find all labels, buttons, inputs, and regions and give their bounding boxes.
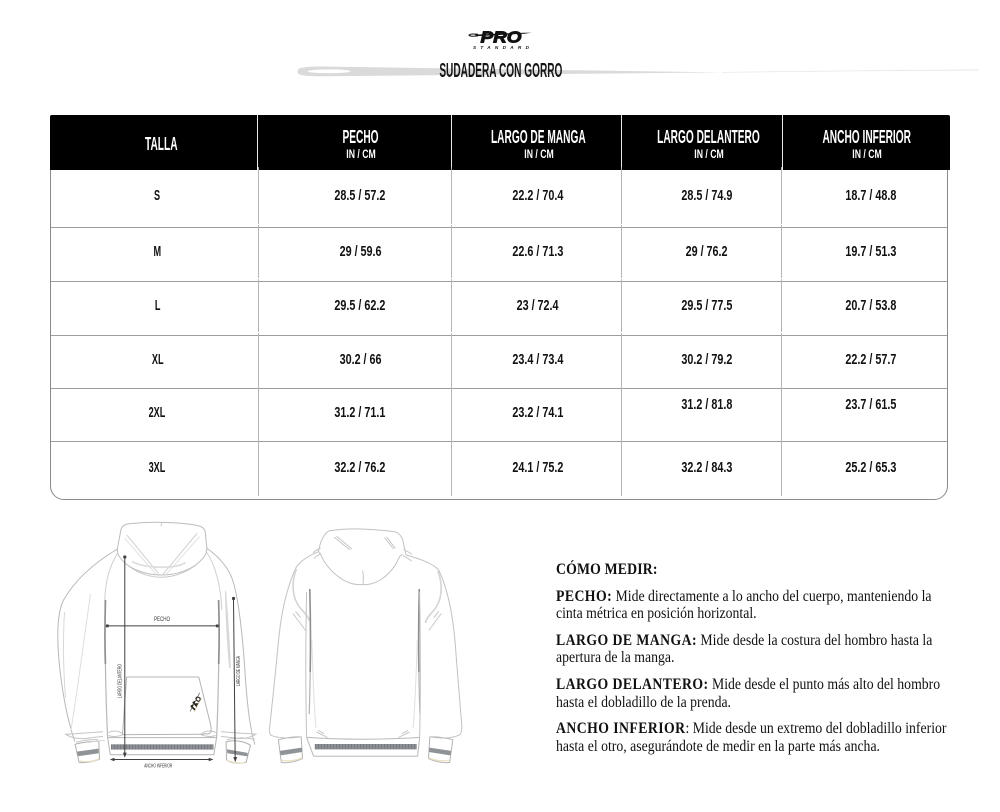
svg-text:ANCHO INFERIOR: ANCHO INFERIOR [144,763,172,769]
svg-text:LARGO DELANTERO: LARGO DELANTERO [118,664,124,698]
svg-text:PECHO: PECHO [154,616,170,623]
svg-text:PRO: PRO [481,29,522,46]
svg-text:LARGO DE MANGA: LARGO DE MANGA [236,656,242,686]
